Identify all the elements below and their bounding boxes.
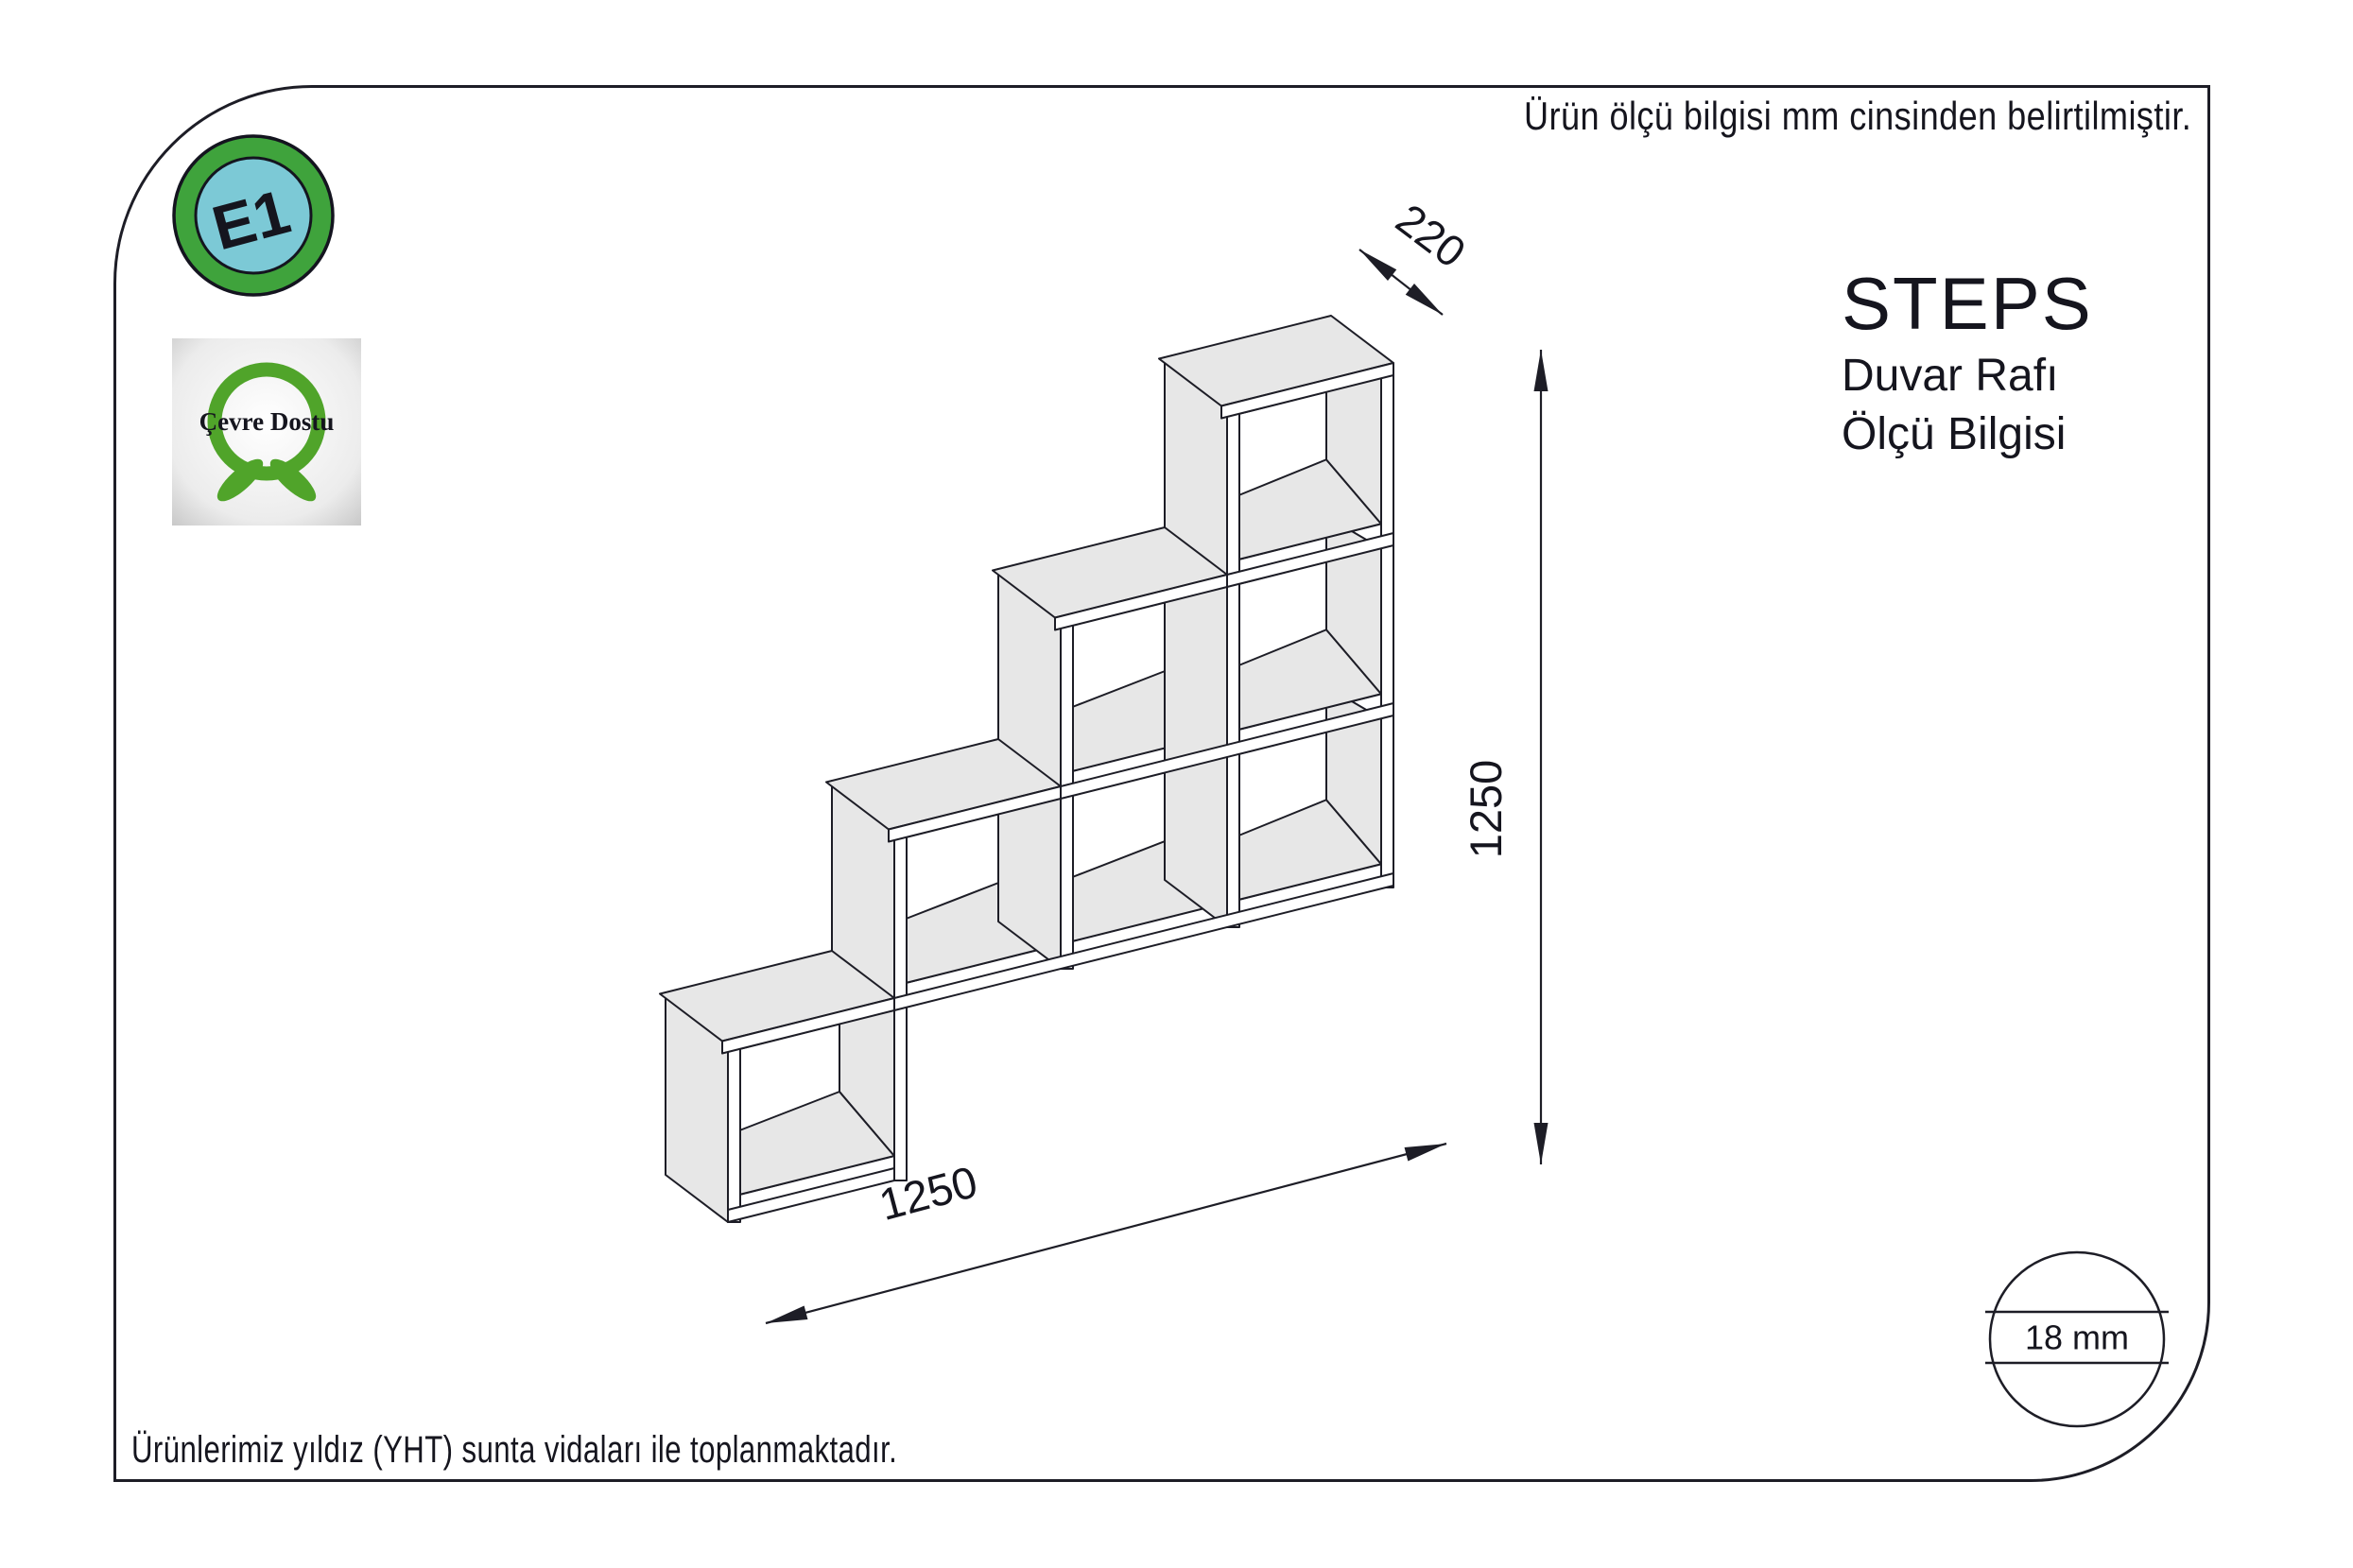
width-dimension-label: 1250 [874, 1156, 982, 1230]
height-dimension [1534, 350, 1548, 1164]
width-dimension-arrowhead-icon [766, 1306, 807, 1323]
bottom-note: Ürünlerimiz yıldız (YHT) sunta vidaları … [131, 1429, 897, 1472]
thickness-symbol: 18 mm [1985, 1252, 2169, 1426]
width-dimension-line [766, 1144, 1446, 1323]
height-dimension-arrowhead-icon [1534, 1123, 1548, 1164]
eco-logo: Çevre Dostu [172, 338, 361, 526]
depth-dimension-label: 220 [1387, 194, 1475, 277]
depth-dimension-arrowhead-icon [1406, 284, 1443, 315]
width-dimension-arrowhead-icon [1405, 1144, 1446, 1161]
left-side-panel [1165, 357, 1227, 927]
eco-label: Çevre Dostu [199, 407, 335, 436]
depth-dimension-arrowhead-icon [1359, 250, 1396, 281]
height-dimension-label: 1250 [1461, 760, 1511, 859]
technical-drawing: E1 Çevre Dostu 220 1250 1250 18 mm [0, 0, 2353, 1568]
width-dimension [766, 1144, 1446, 1323]
panel-front-edge [1381, 365, 1393, 887]
panel-front-edge [1227, 405, 1239, 927]
height-dimension-arrowhead-icon [1534, 350, 1548, 391]
thickness-label: 18 mm [2025, 1318, 2129, 1357]
shelf-isometric-view [660, 316, 1393, 1222]
panel-front-edge [728, 1040, 740, 1222]
e1-badge: E1 [174, 136, 333, 295]
drawing-sheet: Ürün ölçü bilgisi mm cinsinden belirtilm… [0, 0, 2353, 1568]
